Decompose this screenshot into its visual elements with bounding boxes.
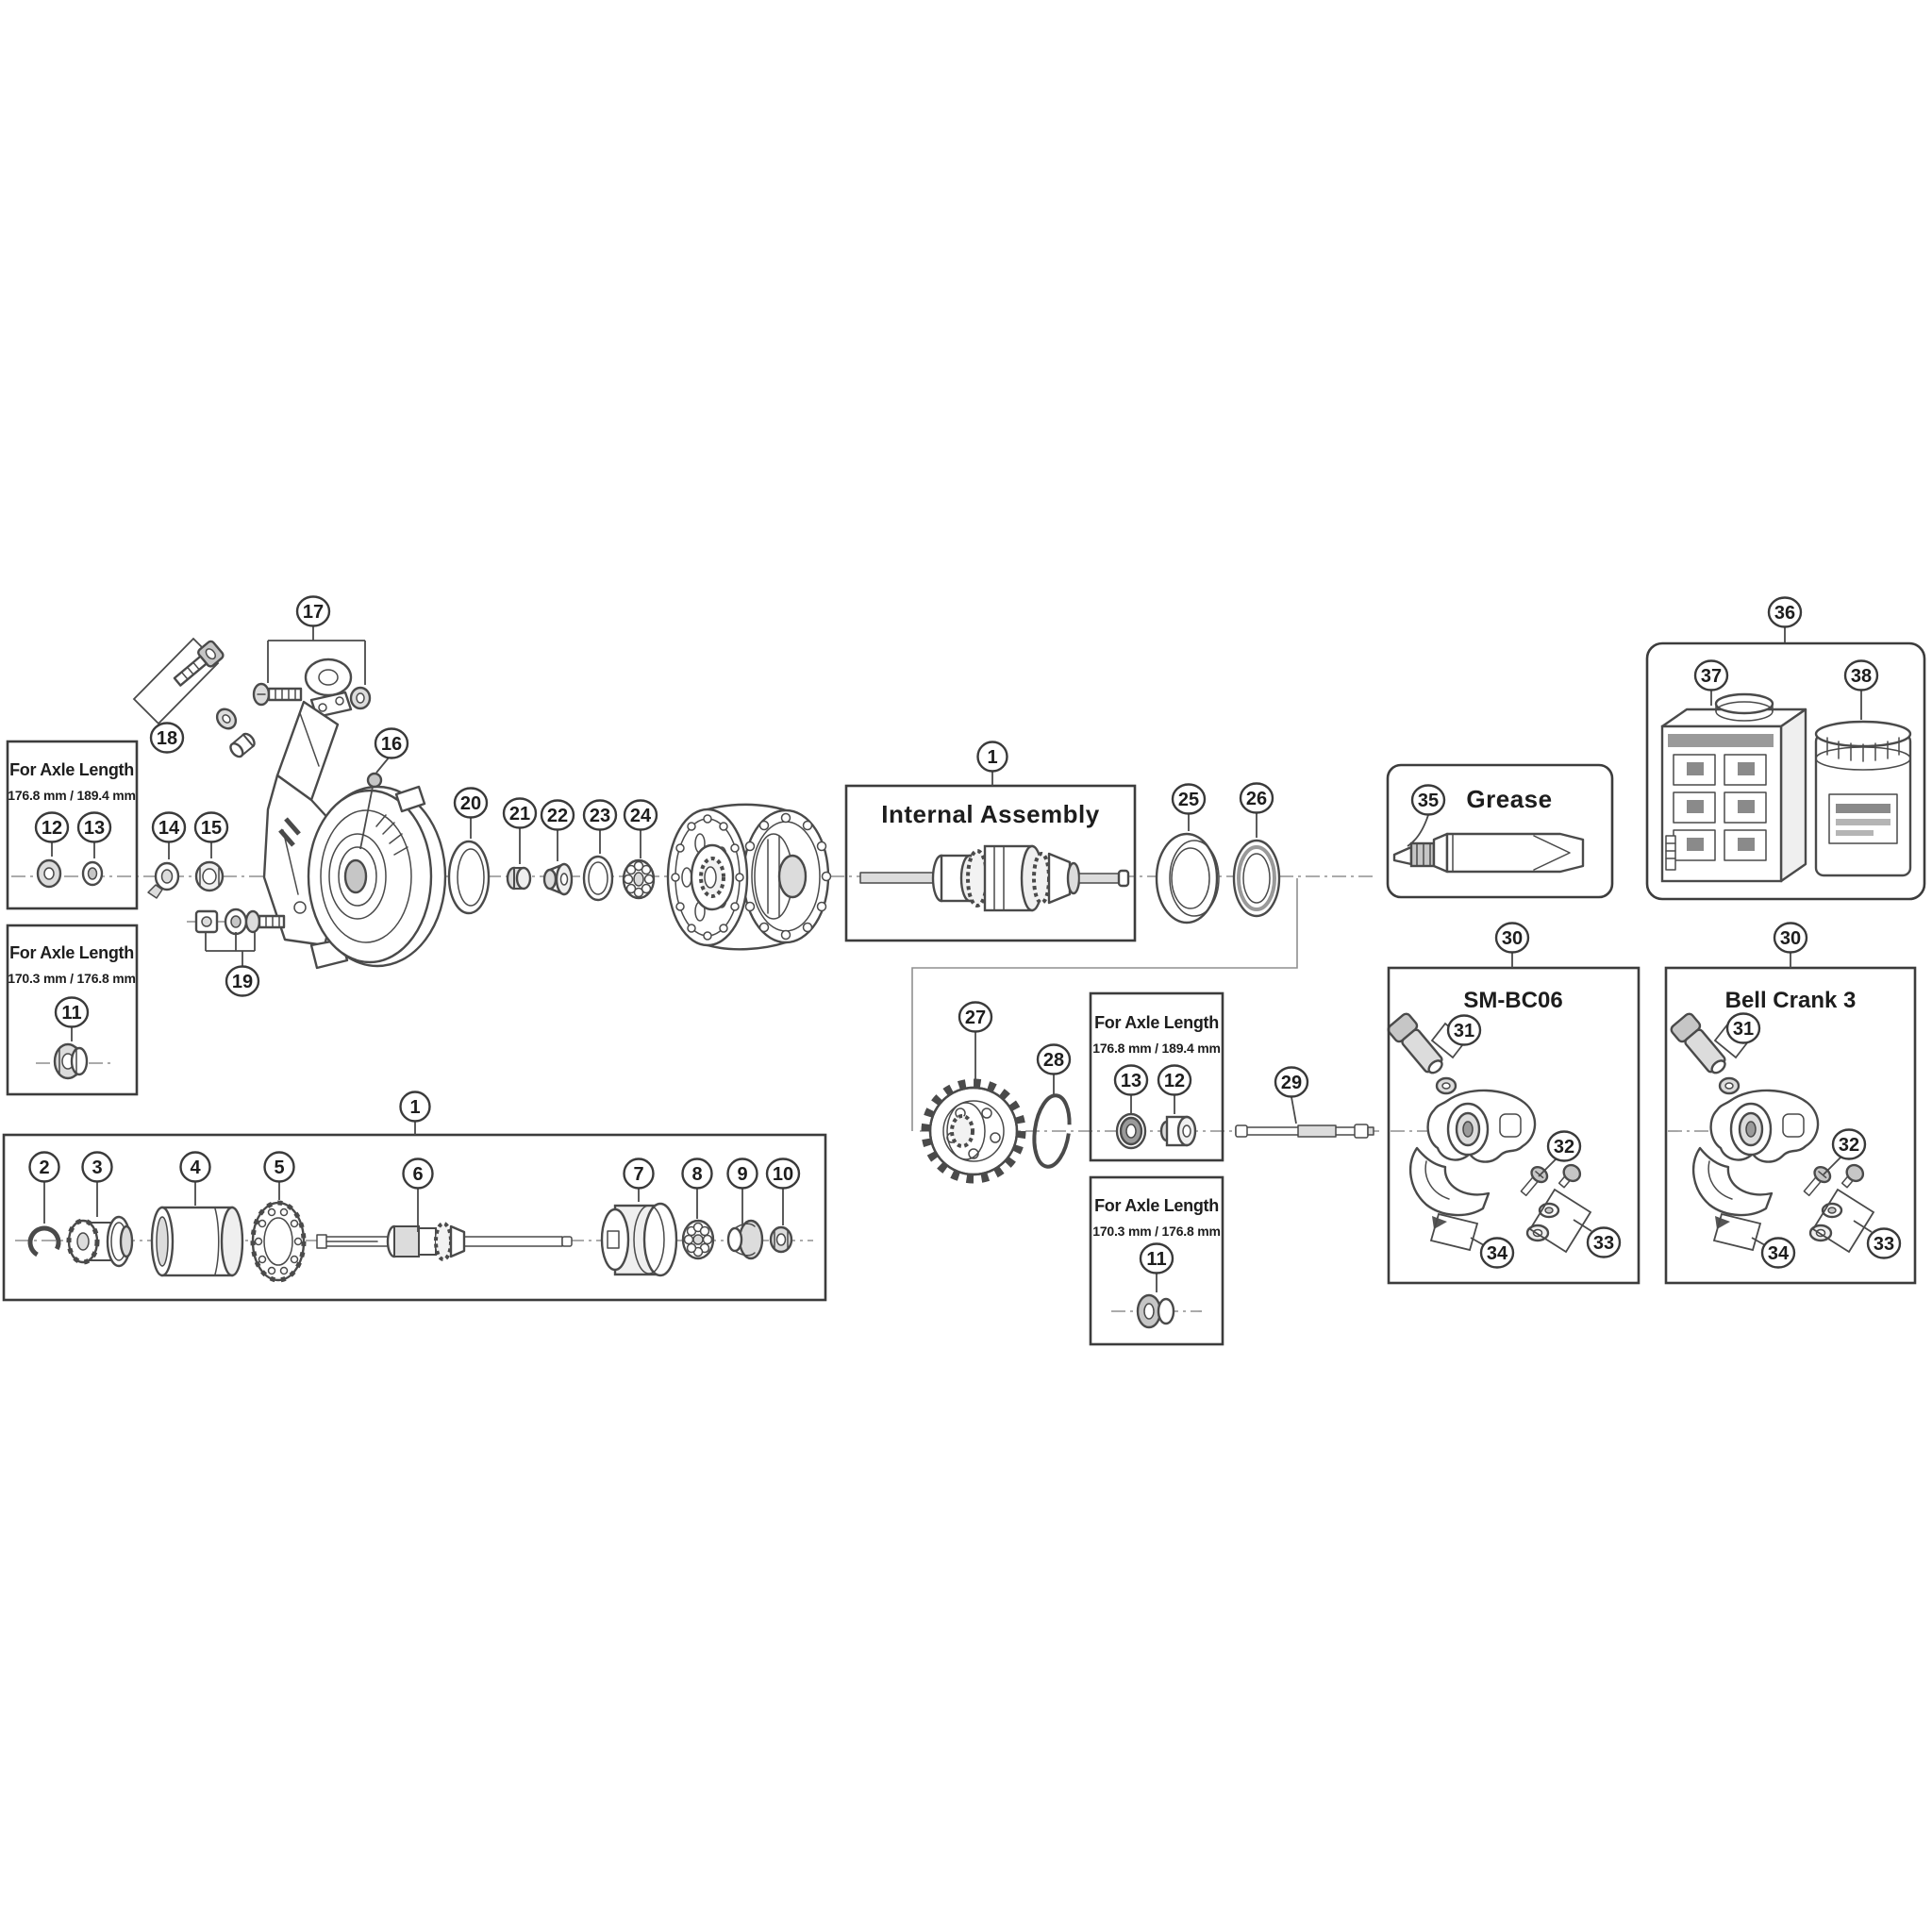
sleeve-4 xyxy=(152,1207,242,1275)
parts-diagram-page: Internal Assembly Grease SM-BC06 Bell Cr… xyxy=(0,0,1932,1932)
callout-number: 12 xyxy=(42,818,62,839)
ball-16 xyxy=(368,774,381,787)
callout-33: 33 xyxy=(1588,1228,1620,1257)
callout-13: 13 xyxy=(1115,1066,1147,1095)
callout-number: 6 xyxy=(412,1164,423,1185)
ball-retainer-24 xyxy=(624,860,654,898)
callout-number: 34 xyxy=(1487,1243,1508,1264)
callout-11: 11 xyxy=(1141,1244,1173,1274)
callout-number: 32 xyxy=(1554,1137,1574,1158)
callout-29: 29 xyxy=(1275,1068,1307,1097)
callout-number: 29 xyxy=(1281,1073,1302,1093)
washer-13-middle xyxy=(1117,1114,1145,1148)
callout-25: 25 xyxy=(1173,785,1205,814)
cone-22 xyxy=(544,864,572,894)
driver-3 xyxy=(69,1217,132,1266)
callout-number: 31 xyxy=(1733,1019,1754,1040)
callout-1: 1 xyxy=(401,1092,430,1122)
hub-nut-11-middle xyxy=(1138,1295,1174,1327)
callout-number: 2 xyxy=(39,1158,49,1178)
callout-number: 1 xyxy=(409,1097,420,1118)
callout-number: 5 xyxy=(274,1158,284,1178)
callout-34: 34 xyxy=(1762,1239,1794,1268)
callout-7: 7 xyxy=(625,1159,654,1189)
callout-number: 31 xyxy=(1454,1021,1474,1041)
axle-length-heading: For Axle Length xyxy=(1094,1013,1219,1032)
bell-crank-3-title: Bell Crank 3 xyxy=(1725,988,1857,1013)
callout-2: 2 xyxy=(30,1153,59,1182)
callout-number: 4 xyxy=(190,1158,201,1178)
cone-cap-9 xyxy=(728,1221,762,1258)
callout-15: 15 xyxy=(195,813,227,842)
callout-number: 22 xyxy=(547,806,568,826)
callout-35: 35 xyxy=(1412,786,1444,815)
callout-number: 25 xyxy=(1178,790,1199,810)
sm-bc06-title: SM-BC06 xyxy=(1463,988,1562,1013)
seal-ring-26 xyxy=(1234,841,1279,916)
axle-length-range: 170.3 mm / 176.8 mm xyxy=(1092,1224,1221,1239)
callout-9: 9 xyxy=(728,1159,758,1189)
callout-34: 34 xyxy=(1481,1239,1513,1268)
callout-number: 7 xyxy=(633,1164,643,1185)
callout-12: 12 xyxy=(1158,1066,1191,1095)
callout-number: 34 xyxy=(1768,1243,1790,1264)
cap-nut-12-middle xyxy=(1161,1117,1195,1145)
axle-length-heading: For Axle Length xyxy=(9,943,134,962)
callout-16: 16 xyxy=(375,729,408,758)
callout-number: 38 xyxy=(1851,666,1872,687)
oil-can-37 xyxy=(1662,694,1806,881)
callout-number: 27 xyxy=(965,1008,986,1028)
locknut-10 xyxy=(771,1227,791,1252)
internal-assembly-unit xyxy=(860,846,1128,910)
callout-17: 17 xyxy=(297,597,329,626)
callout-number: 1 xyxy=(987,747,997,768)
callout-number: 28 xyxy=(1043,1050,1064,1071)
callout-number: 18 xyxy=(157,728,177,749)
parts-19-group xyxy=(196,909,284,934)
callout-18: 18 xyxy=(151,724,183,753)
callout-31: 31 xyxy=(1727,1014,1759,1043)
callout-number: 21 xyxy=(509,804,530,824)
callout-number: 3 xyxy=(92,1158,102,1178)
callout-36: 36 xyxy=(1769,598,1801,627)
callout-19: 19 xyxy=(226,967,258,996)
callout-24: 24 xyxy=(625,801,657,830)
callout-8: 8 xyxy=(683,1159,712,1189)
callout-30: 30 xyxy=(1774,924,1807,953)
non-turn-washer-14 xyxy=(148,863,178,898)
callout-5: 5 xyxy=(265,1153,294,1182)
grease-title: Grease xyxy=(1466,785,1552,813)
callout-number: 37 xyxy=(1701,666,1722,687)
snap-ring-2 xyxy=(25,1224,64,1262)
callout-22: 22 xyxy=(541,801,574,830)
callout-23: 23 xyxy=(584,801,616,830)
callout-number: 15 xyxy=(201,818,222,839)
callout-number: 11 xyxy=(1146,1249,1166,1270)
callout-10: 10 xyxy=(767,1159,799,1189)
callout-number: 13 xyxy=(84,818,105,839)
callout-number: 35 xyxy=(1418,791,1439,811)
callout-number: 24 xyxy=(630,806,652,826)
cap-nut-12-left xyxy=(38,860,60,887)
callout-number: 23 xyxy=(590,806,610,826)
callout-number: 30 xyxy=(1502,928,1523,949)
washer-13-left xyxy=(83,862,102,885)
callout-number: 17 xyxy=(303,602,324,623)
callout-12: 12 xyxy=(36,813,68,842)
ball-retainer-8 xyxy=(683,1221,713,1258)
callout-number: 32 xyxy=(1839,1135,1859,1156)
callout-6: 6 xyxy=(404,1159,433,1189)
callout-20: 20 xyxy=(455,789,487,818)
callout-number: 26 xyxy=(1246,789,1267,809)
callout-number: 13 xyxy=(1121,1071,1141,1091)
seal-washer-23 xyxy=(584,857,612,900)
ring-gear-5 xyxy=(253,1203,304,1280)
callout-number: 12 xyxy=(1164,1071,1185,1091)
callout-27: 27 xyxy=(959,1003,991,1032)
axle-length-heading: For Axle Length xyxy=(9,760,134,779)
hub-shell xyxy=(668,805,831,949)
callout-26: 26 xyxy=(1241,784,1273,813)
grease-tube xyxy=(1394,834,1583,872)
hub-nut-11-left xyxy=(55,1044,87,1078)
push-rod-29 xyxy=(1236,1124,1374,1138)
brake-drum xyxy=(308,787,445,966)
axle-6 xyxy=(317,1224,572,1259)
callout-number: 19 xyxy=(232,972,253,992)
axle-length-range: 176.8 mm / 189.4 mm xyxy=(8,788,136,803)
callout-3: 3 xyxy=(83,1153,112,1182)
callout-1: 1 xyxy=(978,742,1008,772)
callout-11: 11 xyxy=(56,998,88,1027)
axle-length-range: 170.3 mm / 176.8 mm xyxy=(8,971,136,986)
cone-15 xyxy=(196,862,223,891)
callout-38: 38 xyxy=(1845,661,1877,691)
callout-number: 36 xyxy=(1774,603,1795,624)
callout-4: 4 xyxy=(181,1153,210,1182)
callout-number: 9 xyxy=(737,1164,747,1185)
callout-number: 33 xyxy=(1874,1234,1894,1255)
callout-33: 33 xyxy=(1868,1229,1900,1258)
callout-30: 30 xyxy=(1496,924,1528,953)
callout-32: 32 xyxy=(1833,1130,1865,1159)
callout-37: 37 xyxy=(1695,661,1727,691)
callout-14: 14 xyxy=(153,813,185,842)
exploded-diagram-canvas: Internal Assembly Grease SM-BC06 Bell Cr… xyxy=(0,0,1932,1932)
callout-number: 33 xyxy=(1593,1233,1614,1254)
callout-28: 28 xyxy=(1038,1045,1070,1074)
sprocket-27 xyxy=(925,1083,1022,1179)
callout-number: 8 xyxy=(691,1164,702,1185)
ring-25 xyxy=(1157,834,1219,923)
callout-32: 32 xyxy=(1548,1132,1580,1161)
callout-number: 14 xyxy=(158,818,180,839)
callout-31: 31 xyxy=(1448,1016,1480,1045)
seal-ring-20 xyxy=(449,841,489,913)
ball-cup-7 xyxy=(602,1204,676,1275)
callout-number: 16 xyxy=(381,734,402,755)
callout-number: 30 xyxy=(1780,928,1801,949)
internal-assembly-title: Internal Assembly xyxy=(881,800,1100,828)
callout-number: 11 xyxy=(61,1003,81,1024)
axle-length-range: 176.8 mm / 189.4 mm xyxy=(1092,1041,1221,1056)
grease-jar-38 xyxy=(1816,722,1910,875)
callout-number: 20 xyxy=(460,793,481,814)
axle-length-heading: For Axle Length xyxy=(1094,1196,1219,1215)
callout-21: 21 xyxy=(504,799,536,828)
callout-13: 13 xyxy=(78,813,110,842)
callout-number: 10 xyxy=(773,1164,793,1185)
locknut-21 xyxy=(508,868,530,889)
